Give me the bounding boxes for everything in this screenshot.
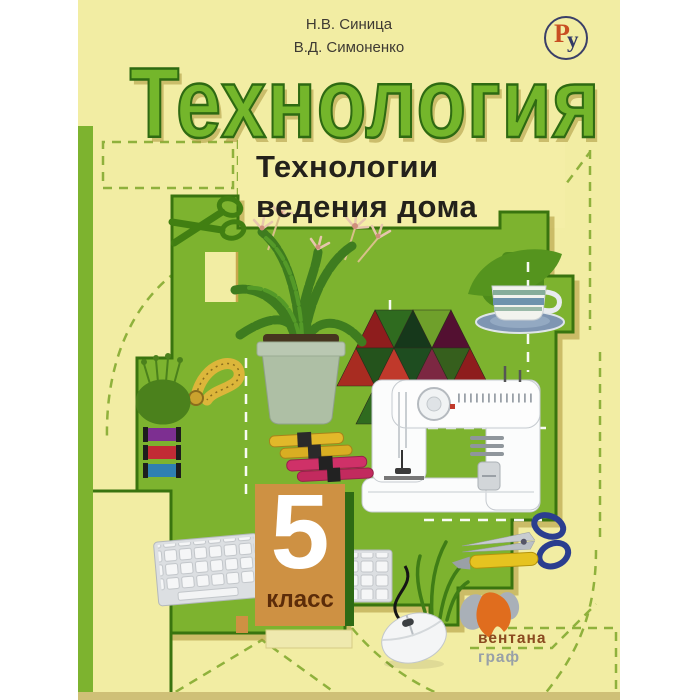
thread-spools-photo [143,427,181,478]
keyboard-left-photo [153,533,262,606]
publisher-logo-text: вентана граф [478,630,547,668]
subtitle-line-1: Технологии [256,147,477,187]
grade-label: класс [255,586,345,614]
cover-left-green-strip [78,126,93,700]
book-title: Технология [78,53,620,152]
publisher-name-line-1: вентана [478,630,547,649]
publisher-name-line-2: граф [478,649,547,668]
book-cover: Н.В. Синица В.Д. Симоненко Р у Технологи… [0,0,700,700]
grade-number: 5 [255,479,345,585]
cover-bottom-strip [78,692,620,700]
book-subtitle: Технологии ведения дома [256,147,477,226]
book-title-text: Технология [130,53,601,152]
author-1: Н.В. Синица [78,13,620,36]
subtitle-line-2: ведения дома [256,187,477,227]
